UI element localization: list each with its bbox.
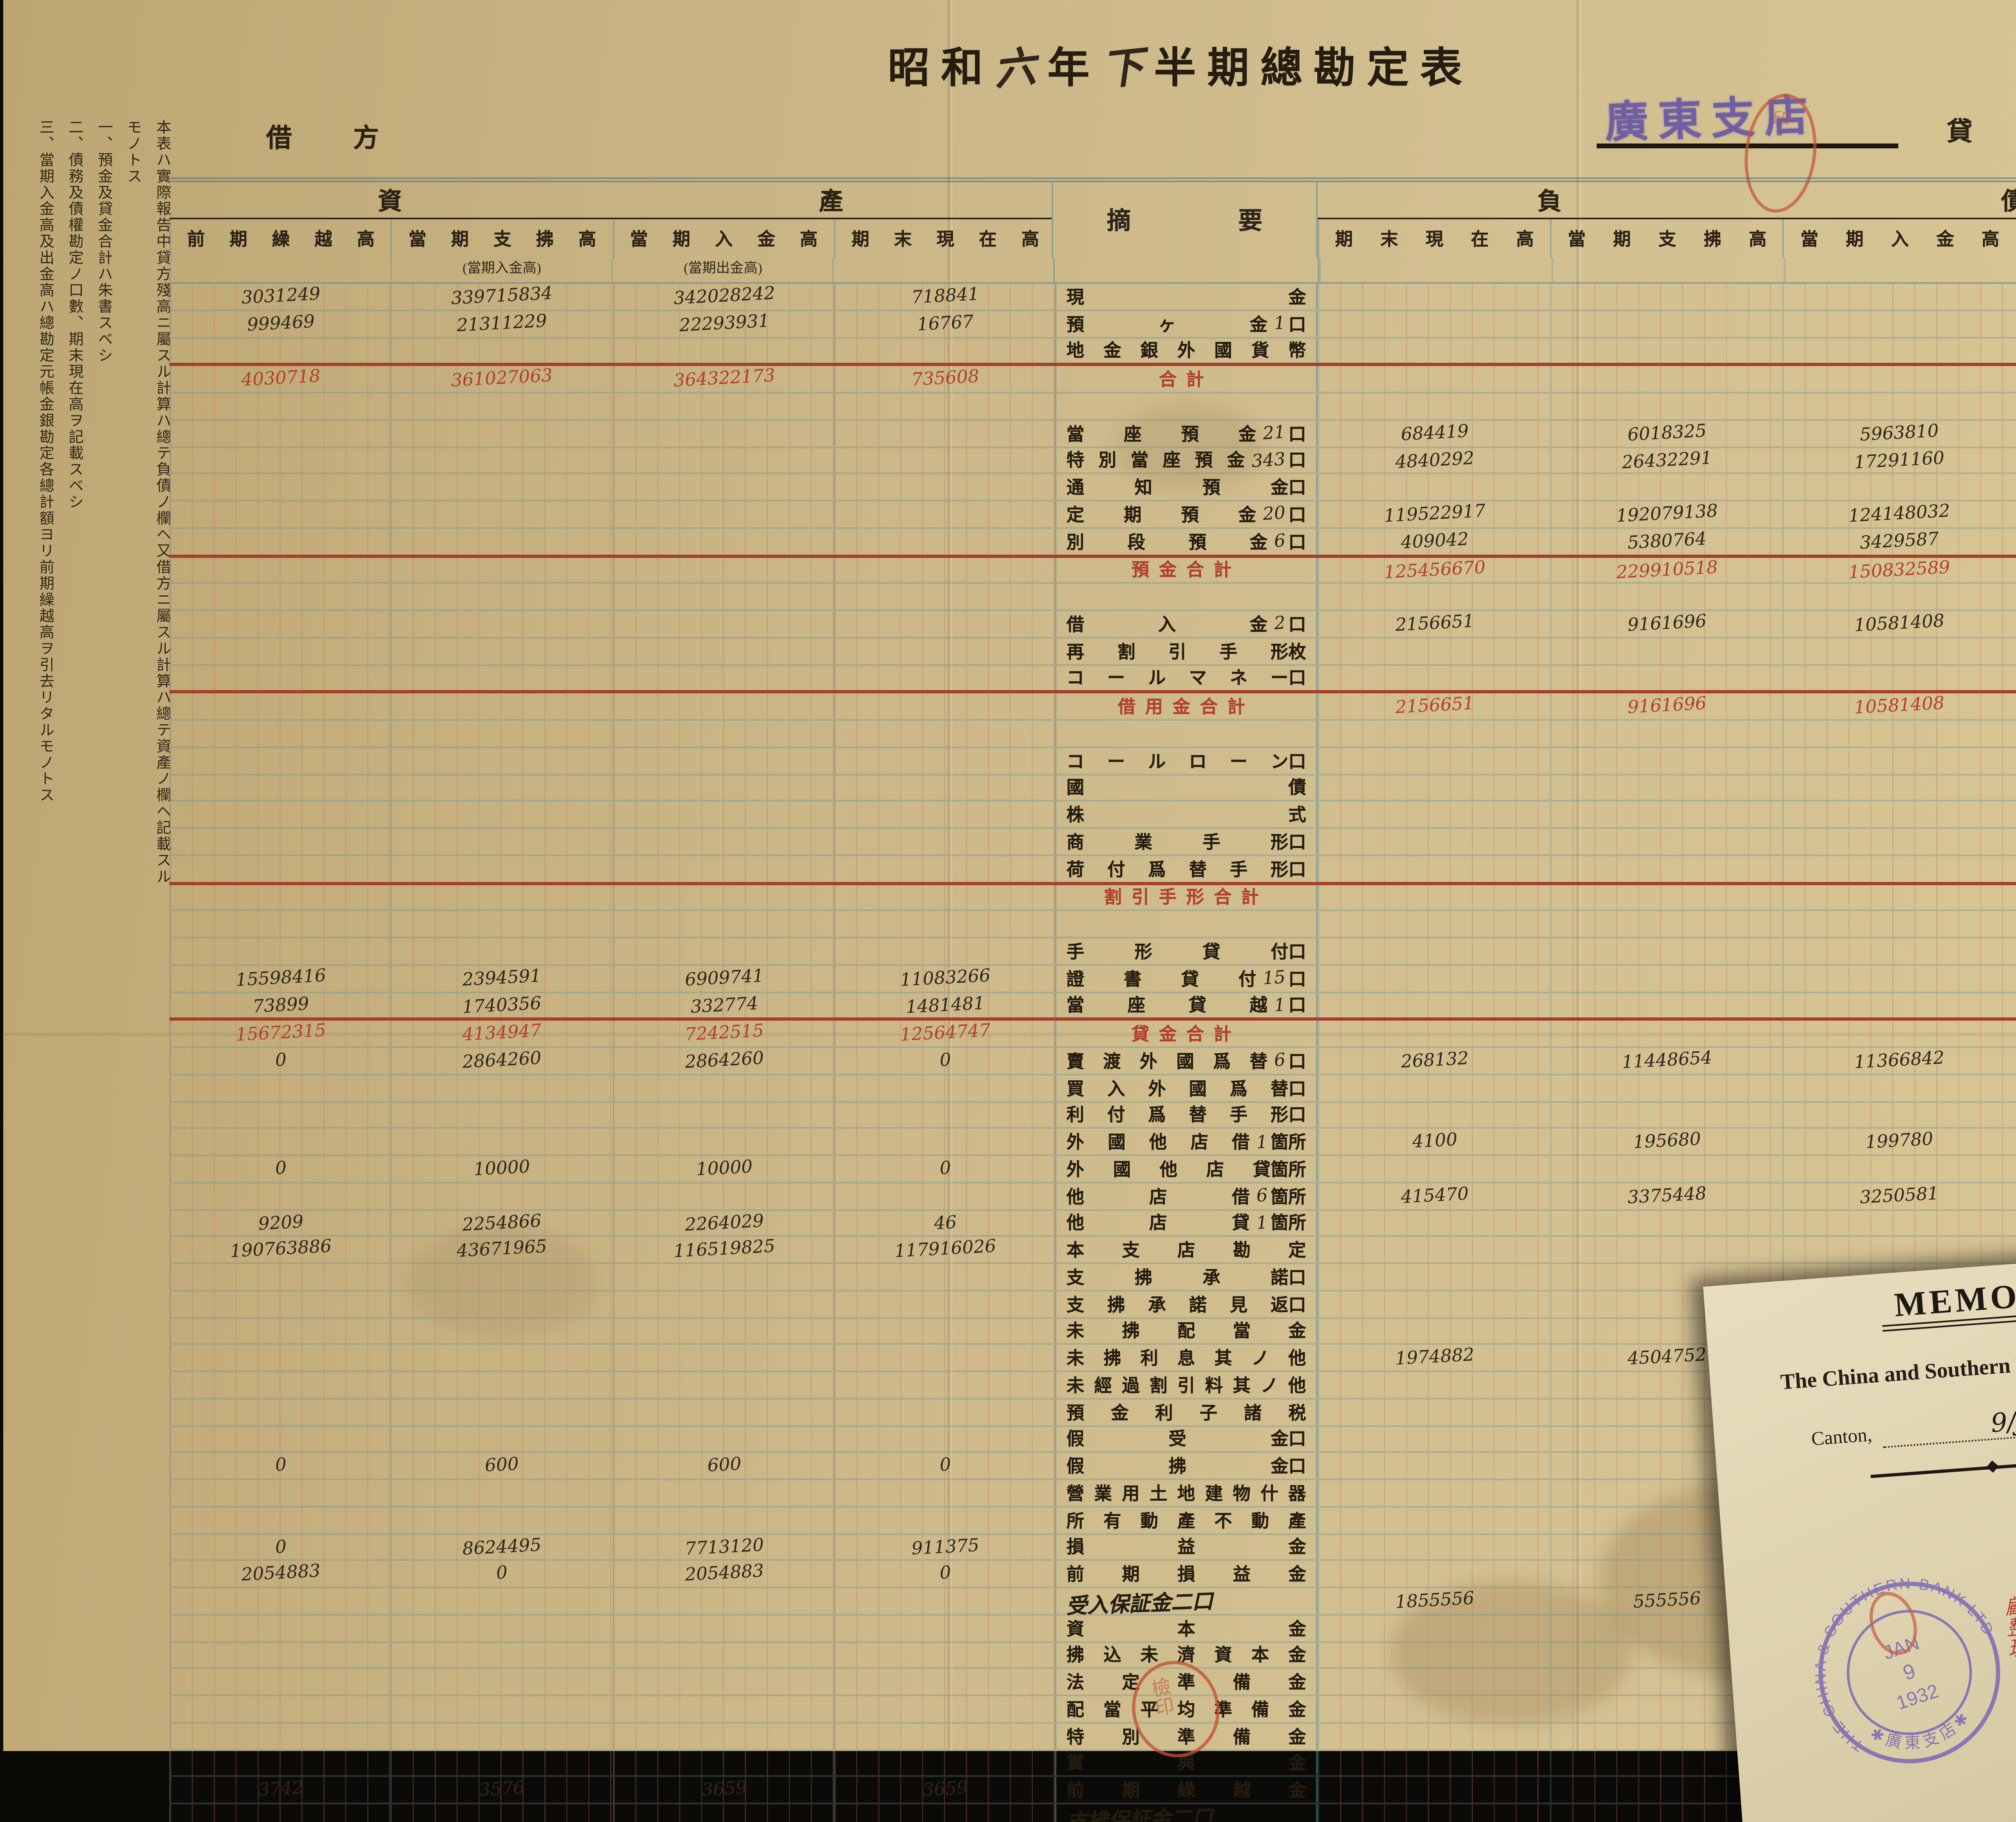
asset-amount-cell: 0: [169, 1048, 391, 1073]
asset-amount-cell: [834, 474, 1055, 500]
account-name-cell: 買入外國爲替口: [1055, 1075, 1317, 1100]
liability-amount-cell: [1317, 393, 1550, 419]
asset-amount-cell: [169, 1804, 391, 1822]
account-name-cell: 證書貸付15口: [1055, 965, 1317, 991]
liability-amount-cell: [1783, 856, 2016, 881]
table-row: 手形貸付口: [169, 938, 2016, 965]
account-name-cell: 通知預金口: [1055, 474, 1317, 500]
account-name-cell: 割引手形合計: [1055, 884, 1317, 910]
account-name-cell: 定期預金20口: [1055, 501, 1317, 527]
liability-amount-cell: [1783, 1075, 2016, 1100]
account-name-cell: 現金: [1055, 284, 1317, 309]
asset-amount-cell: [612, 775, 834, 800]
liability-amount-cell: [1783, 1156, 2016, 1181]
account-name-cell: [1055, 584, 1317, 609]
asset-amount-cell: [391, 802, 612, 827]
liability-amount-cell: [1317, 366, 1550, 392]
asset-amount-cell: 2394591: [391, 965, 612, 991]
account-name-cell: 預金合計: [1055, 557, 1317, 582]
liability-amount-cell: [1783, 665, 2016, 691]
account-name-cell: [1055, 393, 1317, 419]
asset-amount-cell: [834, 748, 1055, 773]
liability-amount-cell: [1317, 1696, 1550, 1722]
asset-amount-cell: [391, 1426, 612, 1452]
account-name-cell: 商業手形口: [1055, 829, 1317, 854]
asset-amount-cell: 6909741: [612, 965, 834, 991]
table-row: 當座預金21口68441960183255963810738934: [169, 420, 2016, 447]
liability-amount-cell: [1550, 338, 1783, 363]
table-row: 他店借6箇所41547033754483250581540337: [169, 1183, 2016, 1210]
liability-amount-cell: [1317, 584, 1550, 609]
asset-amount-cell: [834, 584, 1055, 609]
asset-amount-cell: [612, 1102, 834, 1127]
asset-amount-cell: [391, 1102, 612, 1127]
liability-amount-cell: 10581408: [1783, 694, 2016, 719]
liability-amount-cell: [1550, 1237, 1783, 1263]
asset-amount-cell: 364322173: [612, 366, 834, 392]
column-header: 前期繰越高: [169, 219, 391, 258]
liability-amount-cell: 4840292: [1317, 447, 1550, 473]
asset-amount-cell: [834, 1318, 1055, 1344]
asset-amount-cell: 2864260: [391, 1048, 612, 1073]
asset-amount-cell: [612, 721, 834, 746]
asset-amount-cell: 15598416: [169, 965, 391, 991]
asset-amount-cell: [612, 911, 834, 937]
asset-amount-cell: [612, 856, 834, 881]
asset-amount-cell: [834, 1642, 1055, 1668]
memo-slip: MEMO. The China and Southern Bank, Limit…: [1703, 1236, 2016, 1822]
asset-amount-cell: [169, 884, 391, 910]
account-name-cell: 支拂保証金二口: [1055, 1804, 1317, 1822]
asset-amount-cell: [612, 1507, 834, 1533]
liability-amount-cell: [1783, 802, 2016, 827]
asset-amount-cell: 46: [834, 1210, 1055, 1235]
table-row: [169, 584, 2016, 611]
asset-amount-cell: [169, 501, 391, 527]
account-name-cell: コールローン口: [1055, 748, 1317, 773]
account-name-cell: 支拂承諾口: [1055, 1264, 1317, 1290]
asset-amount-cell: [169, 1588, 391, 1614]
table-row: 通知預金口: [169, 474, 2016, 501]
asset-amount-cell: 8624495: [391, 1534, 612, 1560]
account-name-cell: 特別當座預金343口: [1055, 447, 1317, 473]
liability-amount-cell: 4100: [1317, 1129, 1550, 1154]
column-header-row: 前期繰越高 當期支拂高 當期入金高 期末現在高 期末現在高 當期支拂高 當期入金…: [169, 219, 2016, 258]
liability-amount-cell: [1783, 938, 2016, 964]
liability-amount-cell: [1317, 284, 1550, 309]
asset-amount-cell: 117916026: [834, 1237, 1055, 1263]
account-name-cell: 假拂金口: [1055, 1453, 1317, 1479]
asset-amount-cell: 9209: [169, 1210, 391, 1235]
asset-amount-cell: [169, 1507, 391, 1533]
liability-amount-cell: [1317, 965, 1550, 991]
asset-amount-cell: [169, 721, 391, 746]
asset-amount-cell: [391, 611, 612, 636]
liability-amount-cell: 3429587: [1783, 528, 2016, 554]
asset-amount-cell: [834, 1696, 1055, 1722]
asset-amount-cell: [612, 501, 834, 527]
column-header: 期末現在高: [1317, 219, 1550, 258]
asset-amount-cell: [391, 1075, 612, 1100]
account-name-cell: 借用金合計: [1055, 694, 1317, 719]
liability-amount-cell: [1317, 1399, 1550, 1425]
column-header: 期末現在高: [834, 219, 1055, 258]
asset-amount-cell: [169, 1696, 391, 1722]
asset-amount-cell: [391, 1264, 612, 1290]
account-name-cell: 未拂利息其ノ他: [1055, 1345, 1317, 1371]
liability-amount-cell: [1317, 1426, 1550, 1452]
asset-amount-cell: [169, 1345, 391, 1371]
asset-amount-cell: [169, 584, 391, 609]
asset-amount-cell: [834, 1507, 1055, 1533]
asset-amount-cell: [391, 665, 612, 691]
table-row: 0286426028642600賣渡外國爲替6口2681321144865411…: [169, 1048, 2016, 1075]
liability-amount-cell: [1783, 584, 2016, 609]
liability-amount-cell: 9161696: [1550, 694, 1783, 719]
liability-amount-cell: [1317, 1237, 1550, 1263]
table-row: 利付爲替手形口: [169, 1102, 2016, 1129]
asset-amount-cell: [169, 694, 391, 719]
asset-amount-cell: [612, 665, 834, 691]
asset-amount-cell: 4134947: [391, 1021, 612, 1046]
asset-amount-cell: [169, 856, 391, 881]
credit-side-label: 貸方: [1947, 110, 2016, 148]
liability-amount-cell: [1783, 884, 2016, 910]
asset-amount-cell: [391, 1183, 612, 1208]
asset-amount-cell: [612, 1426, 834, 1452]
table-row: 155984162394591690974111083266證書貸付15口: [169, 965, 2016, 992]
account-name-cell: 利付爲替手形口: [1055, 1102, 1317, 1127]
liability-amount-cell: [1317, 1264, 1550, 1290]
table-row: 支拂保証金二口: [169, 1804, 2016, 1822]
asset-amount-cell: 0: [834, 1561, 1055, 1587]
asset-amount-cell: 11083266: [834, 965, 1055, 991]
liability-amount-cell: [1550, 1021, 1783, 1046]
asset-amount-cell: 911375: [834, 1534, 1055, 1560]
table-row: コールローン口: [169, 748, 2016, 775]
asset-amount-cell: [391, 721, 612, 746]
account-name-cell: 借入金2口: [1055, 611, 1317, 636]
asset-amount-cell: [834, 911, 1055, 937]
liability-amount-cell: 150832589: [1783, 557, 2016, 582]
account-name-cell: 外國他店借1箇所: [1055, 1129, 1317, 1154]
asset-amount-cell: [612, 528, 834, 554]
liability-amount-cell: [1783, 393, 2016, 419]
asset-amount-cell: 116519825: [612, 1237, 834, 1263]
asset-amount-cell: [391, 1750, 612, 1776]
asset-amount-cell: [391, 638, 612, 663]
asset-amount-cell: 2054883: [612, 1561, 834, 1587]
table-row: 7389917403563327741481481當座貸越1口: [169, 992, 2016, 1021]
liability-amount-cell: [1550, 775, 1783, 800]
asset-amount-cell: [834, 1426, 1055, 1452]
asset-amount-cell: 73899: [169, 992, 391, 1018]
bank-date-stamp: THE CHINA & SOUTHERN BANK LTD ✱ 廣 東 支 店 …: [1783, 1546, 2016, 1799]
liability-amount-cell: 1855556: [1317, 1588, 1550, 1614]
liability-amount-cell: [1317, 1642, 1550, 1668]
table-row: 荷付爲替手形口: [169, 856, 2016, 884]
asset-amount-cell: [169, 474, 391, 500]
account-name-cell: 營業用土地建物什器: [1055, 1480, 1317, 1506]
asset-amount-cell: [612, 393, 834, 419]
asset-amount-cell: [169, 1183, 391, 1208]
asset-amount-cell: [169, 393, 391, 419]
liability-amount-cell: [1317, 1507, 1550, 1533]
asset-amount-cell: [612, 1804, 834, 1822]
asset-amount-cell: [169, 557, 391, 582]
liability-amount-cell: [1317, 665, 1550, 691]
liability-amount-cell: [1317, 311, 1550, 336]
liability-amount-cell: [1783, 366, 2016, 392]
liability-amount-cell: [1317, 802, 1550, 827]
asset-amount-cell: 22293931: [612, 311, 834, 336]
liability-amount-cell: [1317, 1723, 1550, 1749]
asset-amount-cell: [612, 584, 834, 609]
asset-amount-cell: [169, 1129, 391, 1154]
liability-amount-cell: 125456670: [1317, 557, 1550, 582]
asset-amount-cell: [612, 447, 834, 473]
liability-amount-cell: [1317, 1318, 1550, 1344]
table-row: 別段預金6口409042538076434295872360219: [169, 528, 2016, 557]
liability-amount-cell: [1783, 911, 2016, 937]
liability-amount-cell: [1317, 1777, 1550, 1803]
note-line: 三、當期入金高及出金高ハ總勘定元帳金銀勘定各總計額ヨリ前期繰越高ヲ引去リタルモノ…: [29, 119, 58, 890]
liability-amount-cell: 268132: [1317, 1048, 1550, 1073]
account-name-cell: [1055, 911, 1317, 937]
asset-amount-cell: 3659: [612, 1777, 834, 1803]
liability-amount-cell: [1550, 965, 1783, 991]
table-row: 999469213112292229393116767預ヶ金1口: [169, 311, 2016, 338]
liability-amount-cell: 199780: [1783, 1129, 2016, 1154]
asset-amount-cell: 10000: [391, 1156, 612, 1181]
account-name-cell: 他店貸1箇所: [1055, 1210, 1317, 1235]
asset-amount-cell: 16767: [834, 311, 1055, 336]
asset-amount-cell: [169, 1264, 391, 1290]
asset-amount-cell: [391, 748, 612, 773]
asset-amount-cell: [612, 1480, 834, 1506]
asset-amount-cell: [612, 1129, 834, 1154]
asset-amount-cell: [169, 1075, 391, 1100]
asset-amount-cell: [834, 611, 1055, 636]
liability-amount-cell: 5963810: [1783, 420, 2016, 446]
liability-amount-cell: [1317, 1480, 1550, 1506]
liability-amount-cell: 229910518: [1550, 557, 1783, 582]
asset-amount-cell: [612, 1075, 834, 1100]
asset-amount-cell: [612, 1264, 834, 1290]
asset-amount-cell: [834, 420, 1055, 446]
asset-amount-cell: [612, 884, 834, 910]
memo-bank-name: The China and Southern Bank, Limited.: [1710, 1337, 2016, 1401]
asset-amount-cell: [834, 856, 1055, 881]
table-row: 外國他店借1箇所41001956801997800: [169, 1129, 2016, 1156]
liability-amount-cell: [1550, 638, 1783, 663]
liability-amount-cell: 195680: [1550, 1129, 1783, 1154]
asset-amount-cell: [612, 748, 834, 773]
asset-amount-cell: [391, 557, 612, 582]
liability-amount-cell: 3375448: [1550, 1183, 1783, 1208]
asset-amount-cell: 342028242: [612, 284, 834, 309]
liability-amount-cell: [1783, 284, 2016, 309]
asset-amount-cell: [169, 1750, 391, 1776]
asset-amount-cell: [612, 1318, 834, 1344]
asset-amount-cell: [169, 528, 391, 554]
asset-amount-cell: 3576: [391, 1777, 612, 1803]
liability-amount-cell: [1550, 1210, 1783, 1235]
asset-amount-cell: [612, 802, 834, 827]
asset-amount-cell: [834, 557, 1055, 582]
asset-amount-cell: [391, 474, 612, 500]
liability-amount-cell: 5380764: [1550, 528, 1783, 554]
liability-amount-cell: [1783, 638, 2016, 663]
asset-amount-cell: [834, 1480, 1055, 1506]
asset-amount-cell: [391, 1588, 612, 1614]
asset-amount-cell: [391, 829, 612, 854]
liability-amount-cell: [1783, 748, 2016, 773]
account-name-cell: 手形貸付口: [1055, 938, 1317, 964]
asset-amount-cell: [834, 829, 1055, 854]
asset-amount-cell: [612, 557, 834, 582]
liability-amount-cell: [1550, 1075, 1783, 1100]
asset-amount-cell: 339715834: [391, 284, 612, 309]
asset-amount-cell: 43671965: [391, 1237, 612, 1263]
asset-amount-cell: [612, 638, 834, 663]
asset-amount-cell: [612, 1696, 834, 1722]
asset-amount-cell: 0: [169, 1534, 391, 1560]
liability-amount-cell: [1550, 992, 1783, 1018]
liability-amount-cell: [1317, 856, 1550, 881]
asset-amount-cell: [169, 1669, 391, 1695]
liability-amount-cell: [1783, 1237, 2016, 1263]
asset-amount-cell: 2254866: [391, 1210, 612, 1235]
asset-amount-cell: [834, 775, 1055, 800]
liability-amount-cell: [1317, 748, 1550, 773]
asset-amount-cell: [391, 938, 612, 964]
table-row: コールマネー口: [169, 665, 2016, 694]
table-row: 借入金2口2156651916169610581408736939: [169, 611, 2016, 638]
liability-amount-cell: [1317, 775, 1550, 800]
account-name-cell: 本支店勘定: [1055, 1237, 1317, 1263]
asset-amount-cell: [169, 775, 391, 800]
account-name-cell: 支拂承諾見返口: [1055, 1291, 1317, 1317]
asset-amount-cell: 1481481: [834, 992, 1055, 1018]
asset-amount-cell: [612, 1183, 834, 1208]
asset-amount-cell: [391, 1318, 612, 1344]
memo-handwritten-date: 9/Jan: [1990, 1403, 2016, 1438]
asset-amount-cell: [612, 420, 834, 446]
asset-amount-cell: [391, 1723, 612, 1749]
asset-amount-cell: [834, 665, 1055, 691]
liability-amount-cell: [1783, 965, 2016, 991]
liabilities-group-header: 負債: [1318, 182, 2016, 219]
memo-divider: [1870, 1455, 2016, 1478]
asset-amount-cell: [834, 884, 1055, 910]
liability-amount-cell: [1550, 911, 1783, 937]
asset-amount-cell: 2264029: [612, 1210, 834, 1235]
liability-amount-cell: [1550, 1102, 1783, 1127]
liability-amount-cell: [1550, 884, 1783, 910]
liability-amount-cell: 415470: [1317, 1183, 1550, 1208]
account-name-cell: 合計: [1055, 366, 1317, 392]
liability-amount-cell: 124148032: [1783, 501, 2016, 527]
asset-amount-cell: [391, 1480, 612, 1506]
instruction-notes: 本表ハ實際報告中貸方殘高ニ屬スル計算ハ總テ負債ノ欄ヘ又借方ニ屬スル計算ハ總テ資產…: [29, 119, 175, 890]
asset-amount-cell: [169, 1723, 391, 1749]
liability-amount-cell: [1550, 1156, 1783, 1181]
asset-amount-cell: [169, 802, 391, 827]
asset-amount-cell: [391, 1615, 612, 1641]
asset-amount-cell: 4030718: [169, 366, 391, 392]
account-name-cell: 賣渡外國爲替6口: [1055, 1048, 1317, 1073]
asset-amount-cell: [834, 1372, 1055, 1398]
asset-amount-cell: [834, 1264, 1055, 1290]
account-name-cell: 地金銀外國貨幣: [1055, 338, 1317, 363]
asset-amount-cell: [391, 911, 612, 937]
table-row: 預金合計125456670229910518150832589204534599: [169, 557, 2016, 584]
assets-group-header: 資產: [169, 182, 1052, 219]
liability-amount-cell: [1550, 393, 1783, 419]
asset-amount-cell: 3659: [834, 1777, 1055, 1803]
liability-amount-cell: [1317, 884, 1550, 910]
liability-amount-cell: [1317, 829, 1550, 854]
liability-amount-cell: [1317, 638, 1550, 663]
asset-amount-cell: [391, 1345, 612, 1371]
sub-header-row: (當期入金高) (當期出金高): [169, 258, 2016, 284]
liability-amount-cell: [1550, 938, 1783, 964]
asset-amount-cell: [391, 1696, 612, 1722]
account-name-cell: 再割引手形枚: [1055, 638, 1317, 663]
liability-amount-cell: 11366842: [1783, 1048, 2016, 1073]
table-row: 株式: [169, 802, 2016, 829]
asset-amount-cell: 0: [834, 1048, 1055, 1073]
asset-amount-cell: [391, 584, 612, 609]
asset-amount-cell: 600: [612, 1453, 834, 1479]
table-row: [169, 721, 2016, 748]
column-header: 當期支拂高: [391, 219, 612, 258]
asset-amount-cell: [834, 1804, 1055, 1822]
asset-amount-cell: [834, 1615, 1055, 1641]
asset-amount-cell: [391, 447, 612, 473]
account-name-cell: 所有動產不動產: [1055, 1507, 1317, 1533]
asset-amount-cell: [169, 1291, 391, 1317]
handwritten-year: 六: [991, 33, 1051, 98]
sub-header: (當期出金高): [612, 258, 833, 282]
asset-amount-cell: [169, 1426, 391, 1452]
asset-amount-cell: 600: [391, 1453, 612, 1479]
asset-amount-cell: [834, 338, 1055, 363]
liability-amount-cell: 192079138: [1550, 501, 1783, 527]
account-name-cell: 國債: [1055, 775, 1317, 800]
note-line: 一、預金及貸金合計ハ朱書スベシ: [87, 119, 117, 890]
liability-amount-cell: 1974882: [1317, 1345, 1550, 1371]
asset-amount-cell: 0: [834, 1156, 1055, 1181]
asset-amount-cell: [834, 447, 1055, 473]
account-name-cell: 假受金口: [1055, 1426, 1317, 1452]
liability-amount-cell: 6018325: [1550, 420, 1783, 446]
asset-amount-cell: [834, 1723, 1055, 1749]
account-name-cell: コールマネー口: [1055, 665, 1317, 691]
asset-amount-cell: [612, 1723, 834, 1749]
liability-amount-cell: [1550, 721, 1783, 746]
liability-amount-cell: [1550, 474, 1783, 500]
account-name-cell: 當座貸越1口: [1055, 992, 1317, 1018]
liability-amount-cell: [1550, 665, 1783, 691]
column-header: 當期入金高: [612, 219, 834, 258]
liability-amount-cell: [1550, 748, 1783, 773]
asset-amount-cell: [834, 1102, 1055, 1127]
asset-amount-cell: [834, 1345, 1055, 1371]
table-row: 19076388643671965116519825117916026本支店勘定: [169, 1237, 2016, 1264]
asset-amount-cell: 190763886: [169, 1237, 391, 1263]
